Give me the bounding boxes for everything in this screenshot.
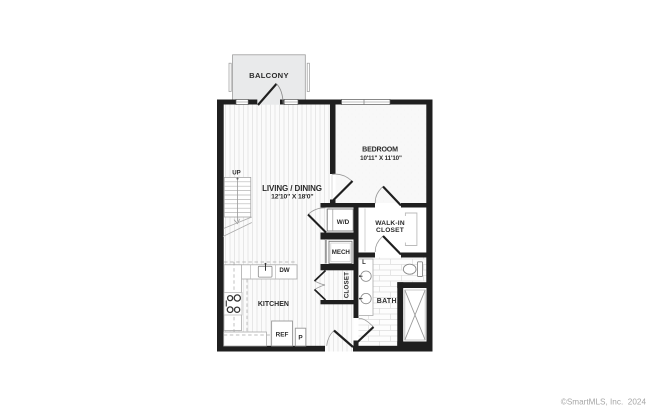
svg-text:BATH: BATH — [377, 298, 397, 305]
svg-text:10'11" X 11'10": 10'11" X 11'10" — [360, 155, 402, 162]
svg-text:UP: UP — [232, 169, 240, 176]
svg-text:DW: DW — [279, 267, 289, 274]
svg-text:BALCONY: BALCONY — [249, 71, 289, 80]
svg-text:©SmartMLS, Inc. 2024: ©SmartMLS, Inc. 2024 — [561, 398, 647, 407]
svg-text:CLOSET: CLOSET — [376, 227, 404, 234]
svg-text:KITCHEN: KITCHEN — [258, 301, 289, 308]
svg-text:12'10" X 18'0": 12'10" X 18'0" — [271, 194, 313, 201]
svg-text:P: P — [298, 335, 303, 342]
svg-text:W/D: W/D — [337, 219, 350, 226]
svg-text:REF: REF — [276, 332, 289, 339]
svg-text:LIVING / DINING: LIVING / DINING — [262, 184, 322, 193]
svg-text:L: L — [362, 260, 366, 266]
svg-text:WALK-IN: WALK-IN — [375, 220, 405, 227]
svg-text:CLOSET: CLOSET — [344, 272, 351, 298]
svg-text:MECH: MECH — [332, 249, 351, 256]
svg-text:BEDROOM: BEDROOM — [362, 145, 398, 153]
